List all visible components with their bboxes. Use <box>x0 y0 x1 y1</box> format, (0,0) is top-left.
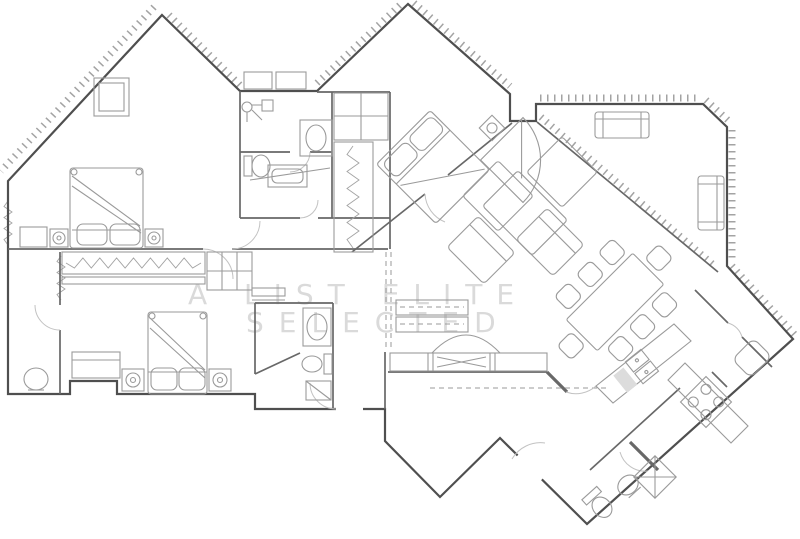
skylight <box>276 72 306 89</box>
lamp-table <box>145 229 163 247</box>
dining-table <box>566 253 664 351</box>
door-opening <box>514 450 547 482</box>
window-zigzag <box>57 256 65 300</box>
kitchen-counter <box>596 324 748 443</box>
exterior-walls <box>8 4 793 524</box>
bath-shelf <box>306 381 331 400</box>
wardrobe-tall <box>334 142 373 252</box>
door-opening <box>336 404 363 414</box>
overhead-opening-dashed <box>386 252 608 388</box>
dresser <box>94 78 129 116</box>
lamp-table <box>209 369 231 391</box>
hall-cabinet <box>207 252 252 290</box>
sectional-sofa <box>463 118 598 256</box>
shower-glass <box>250 168 330 180</box>
toilet-1 <box>244 155 270 177</box>
lamp-table <box>122 369 144 391</box>
vanity-sink-2 <box>303 308 331 346</box>
armchair <box>447 216 515 284</box>
toilet-3 <box>582 486 617 522</box>
armchair <box>516 208 584 276</box>
shelf <box>252 288 285 300</box>
floor-plan-page: A LIST ELITE SELECTED <box>0 0 800 539</box>
cabinet-tall <box>334 93 388 140</box>
shower <box>242 100 273 122</box>
powder-sink <box>24 368 48 390</box>
sofa <box>595 112 649 138</box>
vanity-sink-1 <box>300 120 332 156</box>
dining-set <box>531 218 699 386</box>
interior-walls <box>8 91 772 470</box>
bed-2 <box>148 312 207 394</box>
floor-plan-drawing <box>0 0 800 539</box>
hall-closets <box>396 300 468 332</box>
window-hatching <box>1 3 796 336</box>
entry-canopy <box>432 335 500 353</box>
closet-row <box>62 252 205 284</box>
toilet-2 <box>302 354 332 374</box>
desk <box>72 352 120 378</box>
skylight <box>244 72 272 89</box>
console-table <box>390 353 547 371</box>
lamp-table <box>50 229 68 247</box>
utility-fixture <box>732 338 772 378</box>
shower-2 <box>634 456 676 498</box>
bed-1 <box>70 168 143 248</box>
lamp-table <box>479 115 504 140</box>
nightstand <box>20 227 47 247</box>
sofa <box>698 176 724 230</box>
